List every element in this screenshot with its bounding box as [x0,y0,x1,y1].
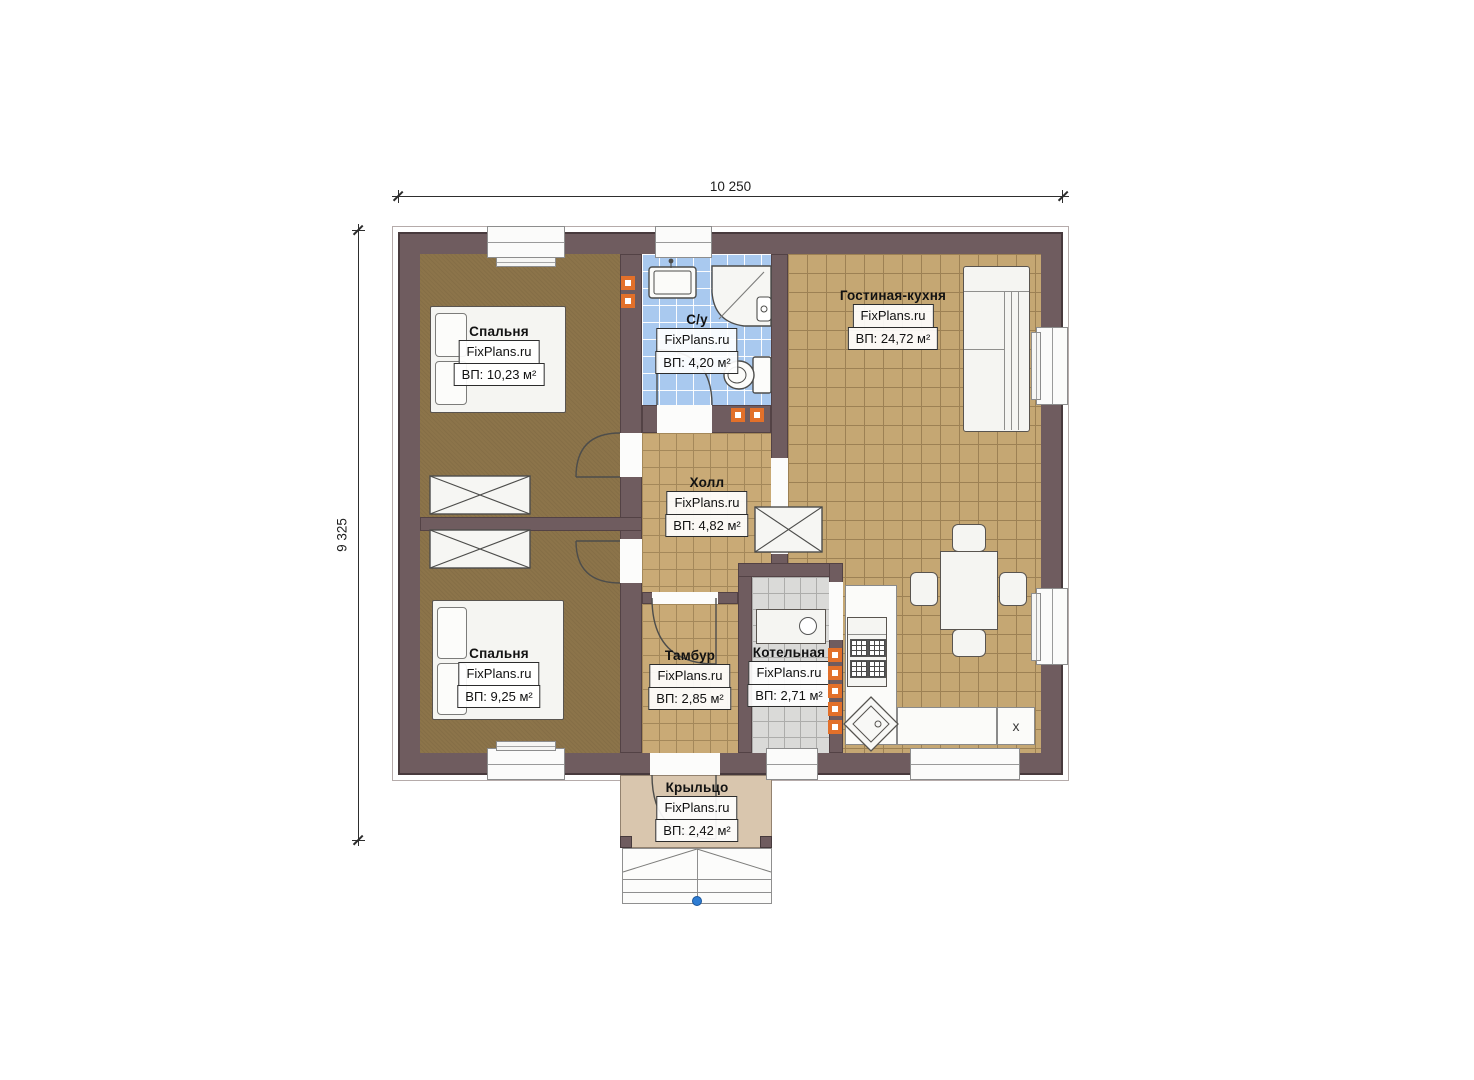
sofa [963,266,1030,432]
radiator [1031,593,1041,661]
counter-marker-label: x [1013,718,1020,734]
door-opening-entrance [650,753,720,775]
vent-marker [731,408,745,422]
room-name: С/у [686,312,708,327]
room-area: ВП: 4,82 м² [665,514,748,538]
vent-marker [828,702,842,716]
room-area: ВП: 2,71 м² [747,684,830,708]
room-label-hall: Холл FixPlans.ru ВП: 4,82 м² [665,475,748,537]
stove-burner [850,639,868,657]
sofa-back-line [1011,291,1012,430]
door-opening-bedroom-1 [620,433,642,477]
stove-burner [850,660,868,678]
dimension-end-line [398,190,399,203]
room-area: ВП: 10,23 м² [454,363,545,387]
room-watermark: FixPlans.ru [458,662,539,686]
room-watermark: FixPlans.ru [666,491,747,515]
dining-chair [999,572,1027,606]
room-label-bedroom-1: Спальня FixPlans.ru ВП: 10,23 м² [454,324,545,386]
porch-steps [622,848,772,904]
dimension-end-line [1062,190,1063,203]
dimension-width: 10 250 [392,179,1069,197]
radiator [496,741,556,751]
room-watermark: FixPlans.ru [656,796,737,820]
porch-post [620,836,632,848]
room-area: ВП: 2,42 м² [655,819,738,843]
sofa-back-line [1004,291,1005,430]
wall-segment [620,254,642,753]
passage-hall-living [771,458,788,554]
room-name: Тамбур [665,648,715,663]
dining-chair [952,629,986,657]
vent-marker [621,294,635,308]
room-area: ВП: 24,72 м² [848,327,939,351]
vent-marker [828,720,842,734]
dimension-height: 9 325 [330,224,390,849]
room-name: Гостиная-кухня [840,288,946,303]
room-label-living-kitchen: Гостиная-кухня FixPlans.ru ВП: 24,72 м² [840,288,946,350]
window [910,748,1020,780]
room-area: ВП: 9,25 м² [457,685,540,709]
room-area: ВП: 2,85 м² [648,687,731,711]
room-name: Спальня [469,646,529,661]
vent-marker [750,408,764,422]
sofa-seat-divider [964,349,1004,350]
radiator [496,257,556,267]
radiator [1031,332,1041,400]
wall-segment [738,563,843,577]
dining-chair [952,524,986,552]
dimension-end-line [352,230,365,231]
dimension-width-line [392,196,1069,197]
room-name: Холл [690,475,725,490]
wall-segment [420,517,642,531]
room-label-porch: Крыльцо FixPlans.ru ВП: 2,42 м² [655,780,738,842]
room-watermark: FixPlans.ru [852,304,933,328]
room-label-vestibule: Тамбур FixPlans.ru ВП: 2,85 м² [648,648,731,710]
kitchen-counter-marker: x [997,707,1035,745]
vent-marker [828,666,842,680]
room-watermark: FixPlans.ru [458,340,539,364]
room-name: Крыльцо [666,780,729,795]
dining-chair [910,572,938,606]
room-label-bedroom-2: Спальня FixPlans.ru ВП: 9,25 м² [457,646,540,708]
door-opening-bathroom [657,405,712,433]
stove-burner [868,660,886,678]
room-watermark: FixPlans.ru [649,664,730,688]
boiler-burner-circle [799,617,817,635]
vent-marker [828,684,842,698]
porch-post [760,836,772,848]
dimension-height-line [358,224,359,846]
dimension-width-label: 10 250 [392,179,1069,194]
room-name: Котельная [753,645,825,660]
room-watermark: FixPlans.ru [656,328,737,352]
dining-table [940,551,998,630]
window [487,748,565,780]
dimension-height-label: 9 325 [335,518,350,552]
room-watermark: FixPlans.ru [748,661,829,685]
sofa-armrest-line [964,291,1029,292]
vent-marker [621,276,635,290]
door-opening-vestibule [652,592,718,604]
room-label-bathroom: С/у FixPlans.ru ВП: 4,20 м² [655,312,738,374]
stove-burner [868,639,886,657]
dimension-end-line [352,840,365,841]
window [655,226,712,258]
stove-panel-line [848,634,886,635]
door-opening-bedroom-2 [620,539,642,583]
kitchen-counter [897,707,997,745]
boiler-unit [756,609,826,644]
room-label-boiler-room: Котельная FixPlans.ru ВП: 2,71 м² [747,645,830,707]
room-name: Спальня [469,324,529,339]
vent-marker [828,648,842,662]
window [487,226,565,258]
stove [847,617,887,687]
steps-centerline [697,849,698,903]
room-area: ВП: 4,20 м² [655,351,738,375]
sofa-back-line [1018,291,1019,430]
window [766,748,818,780]
floor-plan: 10 250 9 325 [0,0,1474,1080]
door-opening-boiler [829,582,843,640]
